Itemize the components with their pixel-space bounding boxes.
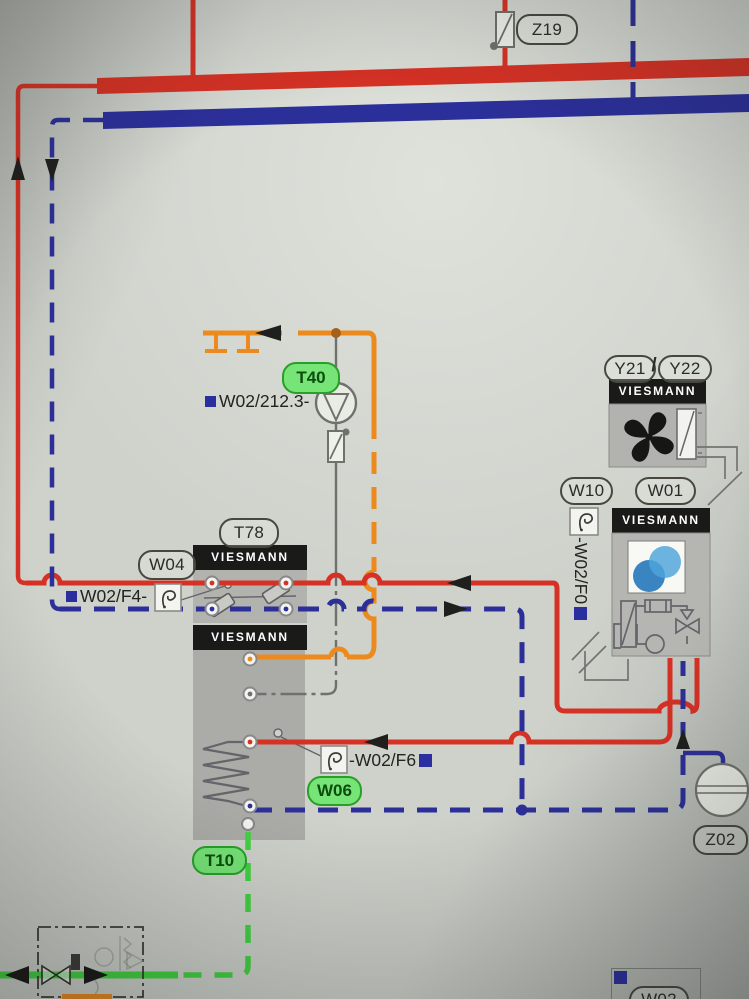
label-w06: W06 <box>307 776 362 806</box>
z19-sensor <box>490 12 514 50</box>
terminal <box>280 603 293 616</box>
label-t78: T78 <box>219 518 279 548</box>
ref-w02-212-3: W02/212.3- <box>205 391 309 412</box>
label-t10: T10 <box>192 846 247 875</box>
brand-logo: VIESMANN <box>193 546 307 569</box>
wire-junction-dot <box>517 805 528 816</box>
label-w10: W10 <box>560 477 613 505</box>
ref-w02-f0: -W02/F0 <box>570 537 591 620</box>
flow-arrow-left-icon <box>255 325 281 341</box>
label-separator: / <box>650 353 658 379</box>
cable-marker-w02f4 <box>155 584 181 611</box>
label-w04: W04 <box>138 550 196 580</box>
label-y21: Y21 <box>604 355 656 383</box>
brand-logo: VIESMANN <box>193 626 307 649</box>
cable-marker-w02f0 <box>570 508 598 535</box>
supply-terminal-icon <box>205 333 259 351</box>
label-w01: W01 <box>635 477 696 505</box>
valve-icon <box>42 966 70 984</box>
valve-stem-icon <box>71 954 80 970</box>
flow-arrow-right-icon <box>444 601 468 617</box>
wire-marker-square <box>205 396 216 407</box>
wire-junction-dot <box>331 328 341 338</box>
wire-marker-square <box>574 607 587 620</box>
terminal <box>244 688 257 701</box>
cable-marker-w02f6 <box>321 746 347 773</box>
brand-logo: VIESMANN <box>609 380 706 403</box>
ref-w02-f4: W02/F4- <box>66 586 147 607</box>
flow-arrow-down-icon <box>45 159 59 182</box>
label-w02: W02 <box>629 986 689 999</box>
wire-marker-square <box>614 971 627 984</box>
z02-expansion-vessel <box>696 764 748 816</box>
terminal <box>244 736 257 749</box>
refrigerant-circle-light <box>649 546 681 578</box>
label-y22: Y22 <box>658 355 712 383</box>
t40-sensor <box>328 429 350 463</box>
terminal <box>206 603 219 616</box>
external-valve-group <box>38 927 143 999</box>
ref-w02-f6: -W02/F6 <box>349 750 432 771</box>
label-t40: T40 <box>282 362 340 394</box>
terminal <box>244 800 257 813</box>
wire-marker-square <box>66 591 77 602</box>
label-z02: Z02 <box>693 825 748 855</box>
terminal <box>244 653 257 666</box>
scheme-canvas <box>0 0 749 999</box>
return-main-bar <box>103 94 749 129</box>
terminal <box>242 818 254 830</box>
wire-marker-square <box>419 754 432 767</box>
scheme-drawing <box>0 0 749 999</box>
brand-logo: VIESMANN <box>612 509 710 532</box>
terminal <box>280 577 293 590</box>
flow-arrow-up-icon <box>676 729 690 749</box>
terminal <box>206 577 219 590</box>
flow-arrow-left-icon <box>447 575 471 591</box>
flow-arrow-up-icon <box>11 156 25 180</box>
w02-reference-box: W02 <box>611 968 701 999</box>
flow-arrow-left-icon <box>5 966 29 984</box>
hydraulic-scheme-photo: Z19 T40 W02/212.3- Y21 / Y22 W10 W01 -W0… <box>0 0 749 999</box>
label-z19: Z19 <box>516 14 578 45</box>
flow-arrow-left-icon <box>364 734 388 750</box>
